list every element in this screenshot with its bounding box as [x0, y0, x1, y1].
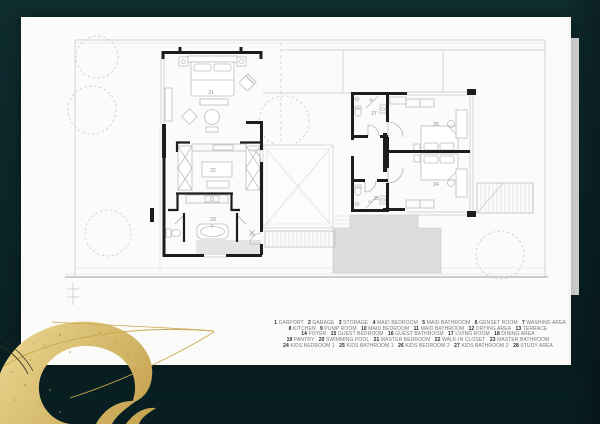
- legend-line: 24 KIDS BEDROOM 125 KIDS BATHROOM 126 KI…: [272, 344, 564, 350]
- legend-item: 28 STUDY AREA: [513, 343, 553, 349]
- plan-card: [21, 17, 571, 365]
- legend-item: 24 KIDS BEDROOM 1: [283, 343, 335, 349]
- legend-item: 26 KIDS BEDROOM 2: [398, 343, 450, 349]
- legend-item: 25 KIDS BATHROOM 1: [339, 343, 394, 349]
- presentation-page: 21 22 23 24 25 26 27 1 CARPORT2 GARAGE3 …: [0, 0, 600, 424]
- legend-item: 27 KIDS BATHROOM 2: [454, 343, 509, 349]
- legend: 1 CARPORT2 GARAGE3 STORAGE4 MAID BEDROOM…: [272, 321, 564, 350]
